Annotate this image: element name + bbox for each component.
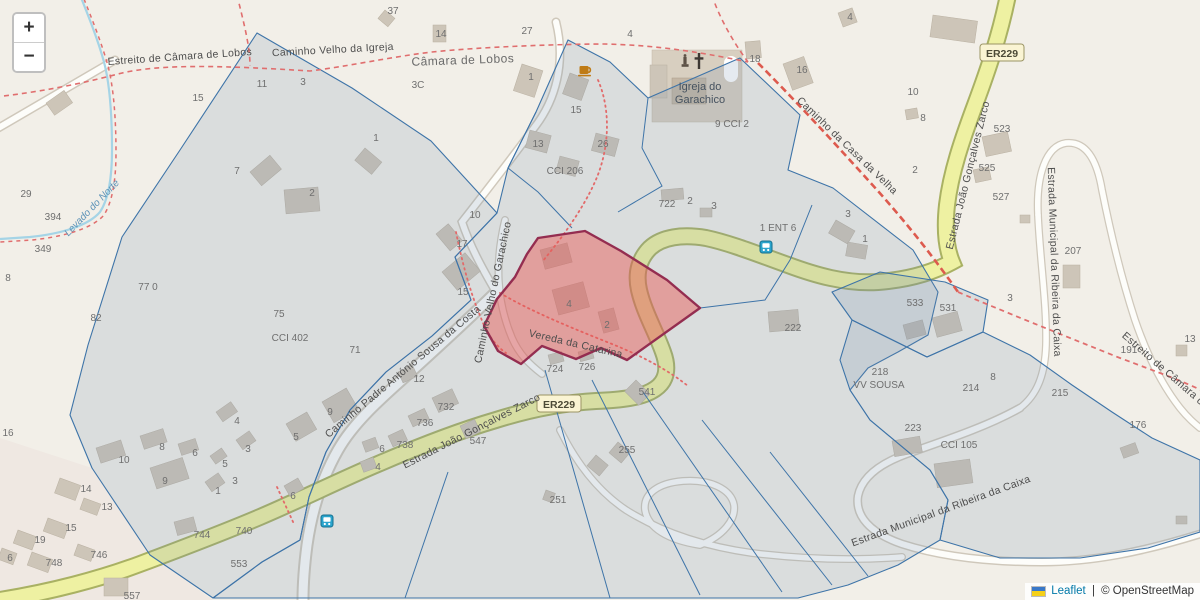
house-number: 9 <box>327 407 333 418</box>
house-number: 6 <box>7 553 13 564</box>
map-canvas[interactable]: ER229 ER229 Estreito de Câmara de Lobos … <box>0 0 1200 600</box>
church-label-line1: Igreja do <box>679 81 722 93</box>
house-number: 19 <box>34 535 46 546</box>
house-number: 222 <box>785 323 802 334</box>
er229-badge: ER229 <box>537 395 581 412</box>
house-number: 218 <box>872 367 889 378</box>
house-number: 3 <box>711 201 717 212</box>
house-number: 724 <box>547 364 564 375</box>
house-number: 5 <box>293 432 299 443</box>
house-number: 8 <box>990 372 996 383</box>
house-number: 527 <box>993 192 1010 203</box>
house-number: 2 <box>912 165 918 176</box>
parcel-code: CCI 105 <box>941 440 978 451</box>
zoom-out-button[interactable]: − <box>14 43 44 71</box>
house-number: 1 <box>215 486 221 497</box>
house-number: 14 <box>80 484 92 495</box>
attribution-bar: Leaflet | © OpenStreetMap <box>1025 583 1200 600</box>
house-number: 732 <box>438 402 455 413</box>
house-number: 15 <box>457 287 469 298</box>
house-number: 3 <box>845 209 851 220</box>
house-number: 12 <box>413 374 425 385</box>
house-number: 349 <box>35 244 52 255</box>
house-number: 10 <box>907 87 919 98</box>
parcel-code: CCI 402 <box>272 333 309 344</box>
house-number: 1 <box>373 133 379 144</box>
ukraine-flag-icon <box>1031 586 1046 597</box>
house-number: 5 <box>222 459 228 470</box>
house-number: 3 <box>1007 293 1013 304</box>
house-number: 736 <box>417 418 434 429</box>
house-number: 176 <box>1130 420 1147 431</box>
house-number: 77 0 <box>138 282 158 293</box>
house-number: 6 <box>192 448 198 459</box>
house-number: 27 <box>521 26 533 37</box>
leaflet-link[interactable]: Leaflet <box>1051 585 1086 597</box>
house-number: 82 <box>90 313 102 324</box>
house-number: 744 <box>194 530 211 541</box>
house-number: 15 <box>192 93 204 104</box>
er229-badge-label: ER229 <box>543 399 575 411</box>
house-number: 746 <box>91 550 108 561</box>
house-number: 740 <box>236 526 253 537</box>
house-number: 3 <box>232 476 238 487</box>
house-number: 394 <box>45 212 62 223</box>
house-number: 2 <box>687 196 693 207</box>
church-label-line2: Garachico <box>675 94 725 106</box>
house-number: 738 <box>397 440 414 451</box>
house-number: 16 <box>2 428 14 439</box>
house-number: 722 <box>659 199 676 210</box>
er229-badge-label: ER229 <box>986 48 1018 60</box>
house-number: 223 <box>905 423 922 434</box>
house-number: 215 <box>1052 388 1069 399</box>
house-number: 8 <box>159 442 165 453</box>
house-number: 17 <box>456 239 468 250</box>
zoom-in-button[interactable]: + <box>14 14 44 43</box>
parcel-code: CCI 206 <box>547 166 584 177</box>
house-number: 29 <box>20 189 32 200</box>
house-number: 3 <box>300 77 306 88</box>
house-number: 75 <box>273 309 285 320</box>
house-number: 4 <box>375 462 381 473</box>
house-number: 547 <box>470 436 487 447</box>
zoom-control: + − <box>12 12 46 73</box>
house-number: 8 <box>920 113 926 124</box>
house-number: 214 <box>963 383 980 394</box>
parcel-code: 9 CCI 2 <box>715 119 749 130</box>
house-number: 4 <box>234 416 240 427</box>
house-number: 251 <box>550 495 567 506</box>
house-number: 14 <box>435 29 447 40</box>
house-number: 71 <box>349 345 361 356</box>
house-number: 4 <box>847 12 853 23</box>
house-number: 10 <box>469 210 481 221</box>
house-number: 8 <box>5 273 11 284</box>
house-number: 726 <box>579 362 596 373</box>
house-number: 541 <box>639 387 656 398</box>
house-number: 6 <box>290 491 296 502</box>
house-number: 18 <box>749 54 761 65</box>
er229-badge: ER229 <box>980 44 1024 61</box>
house-number: 3 <box>245 444 251 455</box>
parcel-code: 1 ENT 6 <box>760 223 797 234</box>
parcel-code: VV SOUSA <box>853 380 904 391</box>
house-number: 2 <box>309 188 315 199</box>
house-number: 16 <box>796 65 808 76</box>
house-number: 553 <box>231 559 248 570</box>
house-number: 15 <box>570 105 582 116</box>
house-number: 11 <box>257 79 268 90</box>
house-number: 525 <box>979 163 996 174</box>
house-number: 523 <box>994 124 1011 135</box>
house-number: 26 <box>597 139 609 150</box>
house-number: 1 <box>862 234 868 245</box>
house-number: 191 <box>1121 345 1138 356</box>
house-number: 9 <box>162 476 168 487</box>
attribution-separator: | <box>1089 585 1098 597</box>
house-number: 255 <box>619 445 636 456</box>
house-number: 207 <box>1065 246 1082 257</box>
house-number: 3C <box>412 80 425 91</box>
house-number: 6 <box>379 444 385 455</box>
bus-stop-icon <box>321 515 333 527</box>
house-number: 13 <box>1184 334 1196 345</box>
map-tiles: ER229 ER229 Estreito de Câmara de Lobos … <box>0 0 1200 600</box>
house-number: 15 <box>65 523 77 534</box>
house-number: 37 <box>387 6 399 17</box>
house-number: 1 <box>528 72 534 83</box>
house-number: 13 <box>101 502 113 513</box>
house-number: 557 <box>124 591 141 600</box>
house-number: 10 <box>118 455 130 466</box>
osm-attribution: © OpenStreetMap <box>1101 585 1194 597</box>
house-number: 748 <box>46 558 63 569</box>
house-number: 2 <box>604 320 610 331</box>
house-number: 533 <box>907 298 924 309</box>
house-number: 4 <box>566 299 572 310</box>
house-number: 13 <box>532 139 544 150</box>
bus-stop-icon <box>760 241 772 253</box>
house-number: 4 <box>627 29 633 40</box>
house-number: 531 <box>940 303 957 314</box>
house-number: 7 <box>234 166 240 177</box>
